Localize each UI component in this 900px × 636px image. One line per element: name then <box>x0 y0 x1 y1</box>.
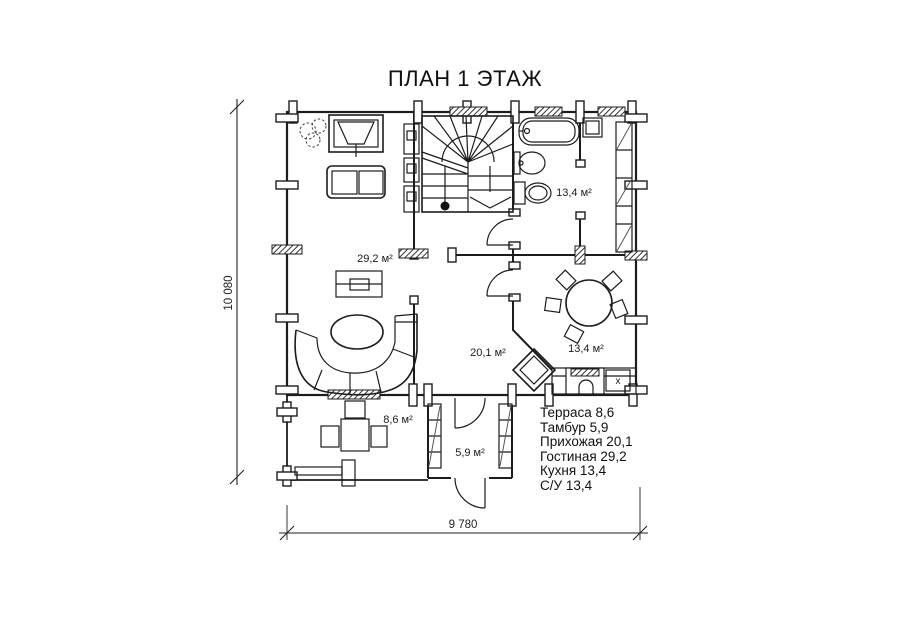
room-label-kitchen: 13,4 м² <box>568 343 604 355</box>
floor-plan-drawing: ПЛАН 1 ЭТАЖ <box>0 0 900 636</box>
coffee-table <box>331 315 383 349</box>
stair-newel-dot <box>441 202 450 211</box>
kitchen-counter: x <box>552 368 636 394</box>
door-kitchen <box>487 270 513 296</box>
dimension-height-label: 10 080 <box>223 275 235 310</box>
doors <box>455 219 513 508</box>
sofa-two-seat <box>327 166 385 198</box>
dimension-width-label: 9 780 <box>449 519 478 531</box>
legend: Терраса 8,6 Тамбур 5,9 Прихожая 20,1 Гос… <box>540 405 633 493</box>
room-label-hallway: 20,1 м² <box>470 347 506 359</box>
bathtub <box>519 118 579 145</box>
bathroom-cabinet <box>583 118 602 137</box>
floor-plan-page: ПЛАН 1 ЭТАЖ <box>0 0 900 636</box>
plant <box>300 119 326 147</box>
room-label-terrace: 8,6 м² <box>383 414 413 426</box>
shelving <box>404 124 419 212</box>
door-tambour-inner <box>455 398 485 428</box>
legend-item-kitchen: Кухня 13,4 <box>540 463 607 478</box>
room-label-tambour: 5,9 м² <box>455 447 485 459</box>
washbasin <box>514 152 545 174</box>
fireplace <box>329 115 383 157</box>
kitchen-dining-table <box>545 270 628 343</box>
legend-item-tambour: Тамбур 5,9 <box>540 420 608 435</box>
legend-item-hallway: Прихожая 20,1 <box>540 434 633 449</box>
toilet <box>514 182 551 204</box>
page-title: ПЛАН 1 ЭТАЖ <box>388 66 542 91</box>
tv-stand <box>336 271 382 297</box>
terrace-furniture <box>295 401 387 486</box>
kitchen-sink-mark: x <box>616 376 621 387</box>
legend-item-terrace: Терраса 8,6 <box>540 405 614 420</box>
door-bathroom <box>487 219 513 245</box>
sectional-sofa <box>295 314 417 395</box>
door-tambour-entry <box>455 478 485 508</box>
legend-item-living: Гостиная 29,2 <box>540 449 627 464</box>
staircase <box>422 116 513 212</box>
terrace-bench <box>295 460 355 486</box>
room-label-living: 29,2 м² <box>357 253 393 265</box>
room-label-bathroom: 13,4 м² <box>556 187 592 199</box>
legend-item-bathroom: С/У 13,4 <box>540 478 593 493</box>
